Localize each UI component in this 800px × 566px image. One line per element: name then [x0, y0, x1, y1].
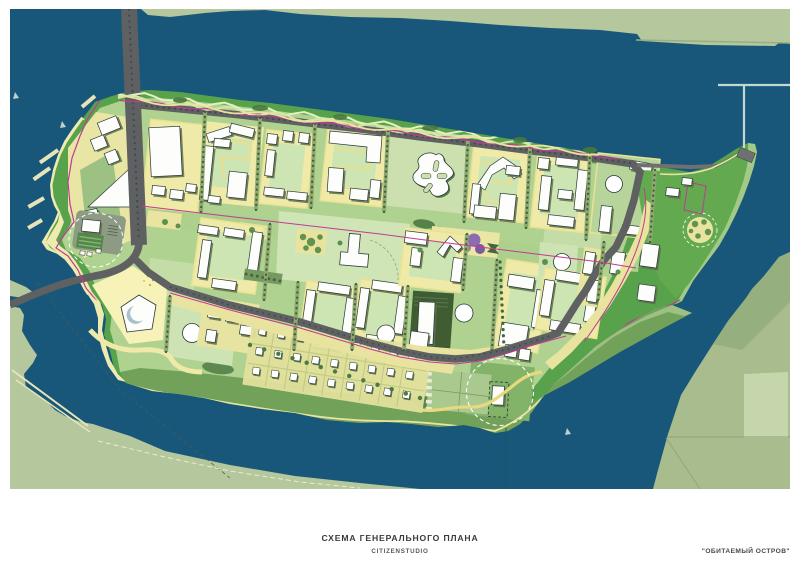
svg-text:СХЕМА ГЕНЕРАЛЬНОГО ПЛАНА: СХЕМА ГЕНЕРАЛЬНОГО ПЛАНА [321, 533, 478, 543]
svg-text:CITIZENSTUDIO: CITIZENSTUDIO [371, 548, 428, 555]
svg-text:"ОБИТАЕМЫЙ ОСТРОВ": "ОБИТАЕМЫЙ ОСТРОВ" [702, 546, 790, 555]
